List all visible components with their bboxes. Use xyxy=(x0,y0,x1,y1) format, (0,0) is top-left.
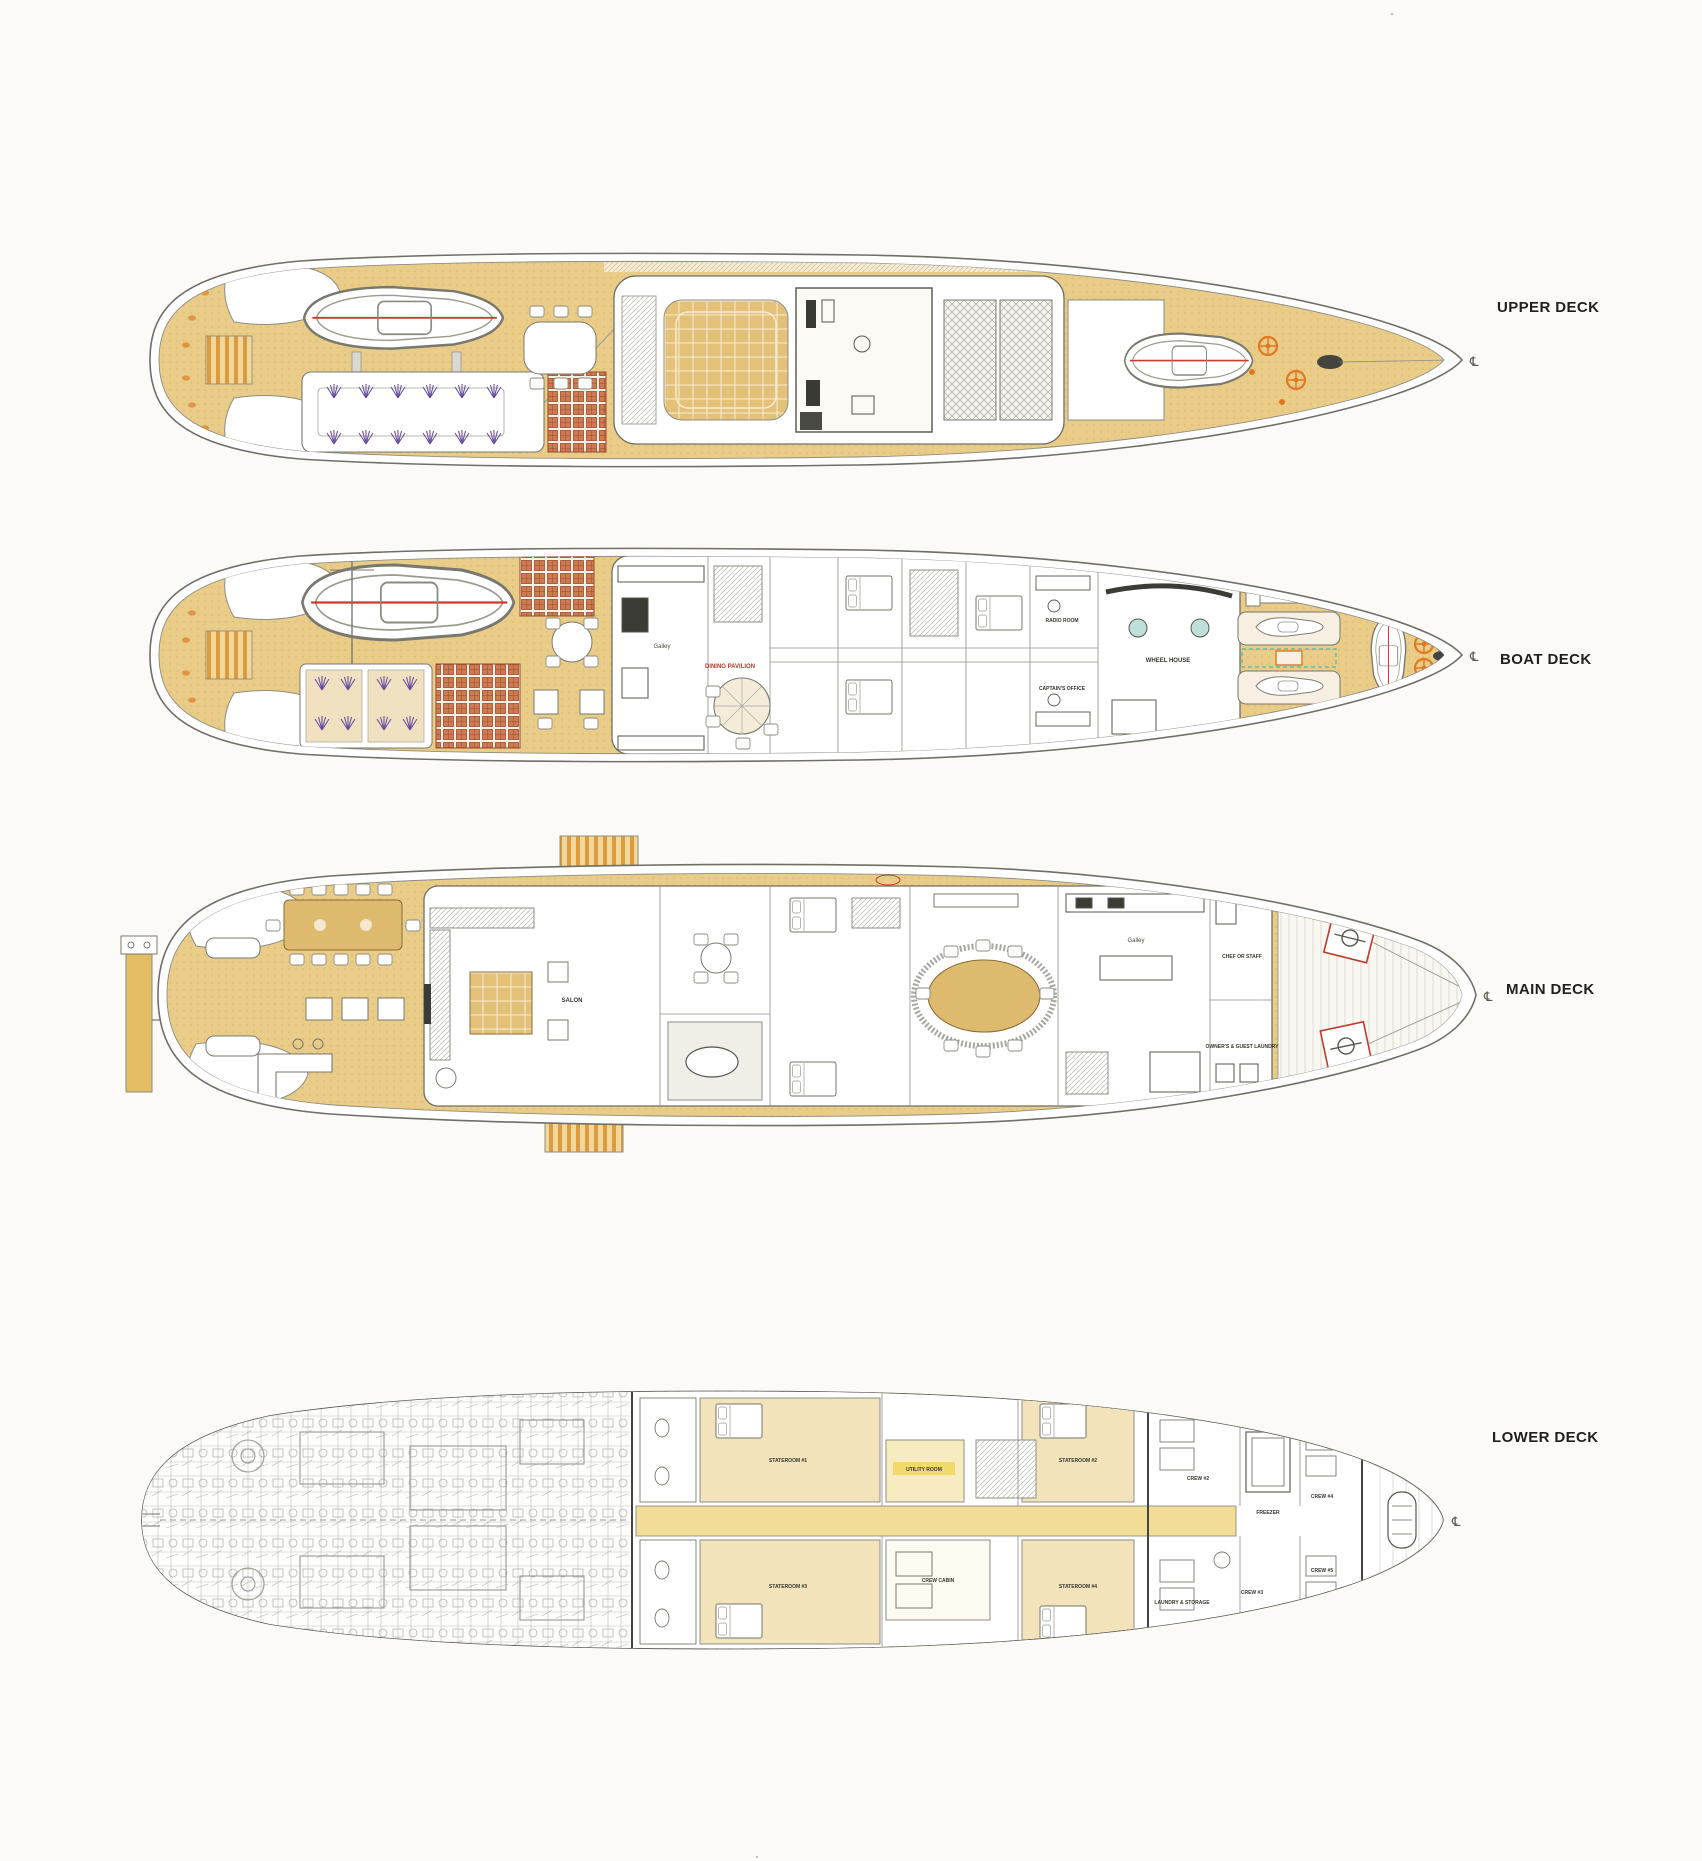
stateroom-bed xyxy=(790,1062,836,1096)
main-deck-plan: SALON Galley CHEF OR STAFF OWNER'S & GUE… xyxy=(121,836,1595,1152)
gym-bike xyxy=(806,380,820,406)
spa-sunbed xyxy=(664,300,788,420)
tv-cabinet xyxy=(424,984,431,1024)
corridor xyxy=(636,1506,1236,1536)
gym-treadmill xyxy=(806,300,816,328)
aft-settee xyxy=(206,938,260,958)
round-side-table xyxy=(436,1068,456,1088)
stairwell xyxy=(910,570,958,636)
deck-title-upper: UPPER DECK xyxy=(1497,299,1599,316)
deck-title-boat: BOAT DECK xyxy=(1500,651,1592,668)
salon-sofa xyxy=(430,930,450,1060)
nav-panel xyxy=(1226,740,1234,746)
deck-title-main: MAIN DECK xyxy=(1506,981,1595,998)
anchor-windlass-drum xyxy=(1317,355,1343,369)
room-label-laundry-storage: LAUNDRY & STORAGE xyxy=(1154,1600,1210,1606)
room-label-stateroom-2: STATEROOM #2 xyxy=(1059,1458,1097,1464)
stairwell xyxy=(714,566,762,622)
toy-cradle xyxy=(1276,651,1302,665)
tender-boat-aft xyxy=(304,287,503,349)
upper-deck-plan: ℄ UPPER DECK xyxy=(150,253,1599,466)
deck-plan-drawing: ℄ UPPER DECK xyxy=(0,0,1702,1861)
room-label-crew-3: CREW #3 xyxy=(1241,1590,1263,1596)
tender-boat-forward xyxy=(1125,334,1253,388)
room-label-salon: SALON xyxy=(562,998,583,1004)
sun-lounger-pads xyxy=(300,664,432,748)
tender-chock xyxy=(452,352,461,374)
main-deckhouse xyxy=(424,886,1272,1106)
tender-chock xyxy=(352,352,361,374)
coffee-table xyxy=(470,972,532,1034)
room-label-owners-guest-laundry: OWNER'S & GUEST LAUNDRY xyxy=(1206,1044,1280,1050)
room-label-chef-or-staff: CHEF OR STAFF xyxy=(1222,954,1262,960)
room-label-dining-pavilion: DINING PAVILION xyxy=(705,664,755,670)
room-label-freezer: FREEZER xyxy=(1256,1510,1280,1516)
boat-deckhouse xyxy=(612,556,1240,754)
salon-sofa xyxy=(430,908,534,928)
gym-room xyxy=(796,288,932,432)
bathtub xyxy=(686,1047,738,1077)
stairwell xyxy=(852,898,900,928)
gym-mat xyxy=(800,412,822,430)
side-table xyxy=(548,1020,568,1040)
stateroom-bed xyxy=(716,1404,762,1438)
stairwell xyxy=(976,1440,1036,1498)
engine-room xyxy=(88,1390,630,1650)
dining-table xyxy=(928,960,1040,1032)
deck-plan-sheet: ℄ UPPER DECK xyxy=(0,0,1702,1861)
room-label-wheel-house: WHEEL HOUSE xyxy=(1146,658,1191,664)
centerline-symbol: ℄ xyxy=(1483,990,1493,1005)
chain-locker xyxy=(1388,1492,1416,1548)
lower-deck-details xyxy=(88,1390,1443,1650)
cabin-bed xyxy=(976,596,1022,630)
capstan-icon xyxy=(1259,337,1277,355)
stateroom-bed xyxy=(790,898,836,932)
helm-chair xyxy=(1129,619,1147,637)
room-label-stateroom-1: STATEROOM #1 xyxy=(769,1458,807,1464)
aft-lounge-tables xyxy=(306,998,404,1020)
sideboard xyxy=(934,894,1018,907)
stateroom-bed xyxy=(1040,1404,1086,1438)
room-label-galley: Galley xyxy=(1127,938,1144,944)
boat-deck-plan: Galley DINING PAVILION RADIO ROOM CAPTAI… xyxy=(150,548,1592,762)
room-label-utility-room: UTILITY ROOM xyxy=(906,1467,942,1473)
deck-grating xyxy=(520,556,594,616)
accommodation-area xyxy=(632,1392,1416,1648)
side-table xyxy=(548,962,568,982)
guest-bath xyxy=(668,1022,762,1100)
room-label-crew-2: CREW #2 xyxy=(1187,1476,1209,1482)
helm-chair xyxy=(1191,619,1209,637)
sun-lounge-house xyxy=(302,372,544,452)
nav-panel xyxy=(1226,566,1234,572)
deck-grating xyxy=(436,664,520,748)
stern-stairs xyxy=(206,336,252,384)
room-label-stateroom-3: STATEROOM #3 xyxy=(769,1584,807,1590)
room-label-crew-5: CREW #5 xyxy=(1311,1568,1333,1574)
room-label-stateroom-4: STATEROOM #4 xyxy=(1059,1584,1097,1590)
room-label-crew-4: CREW #4 xyxy=(1311,1494,1333,1500)
deck-fitting xyxy=(1249,369,1255,375)
upper-superstructure xyxy=(604,262,1064,444)
aft-settee xyxy=(206,1036,260,1056)
stairwell xyxy=(622,296,656,424)
cabin-bed xyxy=(846,680,892,714)
stern-stairs xyxy=(206,631,252,679)
centerline-symbol: ℄ xyxy=(1469,650,1479,665)
scan-speck xyxy=(756,1856,758,1858)
scan-speck xyxy=(1391,13,1394,16)
stateroom-bed xyxy=(716,1604,762,1638)
round-table-group xyxy=(546,618,598,667)
room-label-crew-cabin: CREW CABIN xyxy=(922,1578,955,1584)
capstan-icon xyxy=(1287,371,1305,389)
room-label-radio-room: RADIO ROOM xyxy=(1045,618,1078,624)
room-label-galley: Galley xyxy=(653,644,670,650)
centerline-symbol: ℄ xyxy=(1451,1515,1461,1530)
lower-deck-plan: STATEROOM #1 STATEROOM #3 STATEROOM #2 S… xyxy=(88,1390,1599,1650)
cabin-bed xyxy=(846,576,892,610)
room-label-captains-office: CAPTAIN'S OFFICE xyxy=(1039,686,1086,692)
deck-title-lower: LOWER DECK xyxy=(1492,1429,1599,1446)
centerline-symbol: ℄ xyxy=(1469,355,1479,370)
deck-fitting xyxy=(1279,399,1285,405)
tender-boat-aft xyxy=(302,565,513,640)
